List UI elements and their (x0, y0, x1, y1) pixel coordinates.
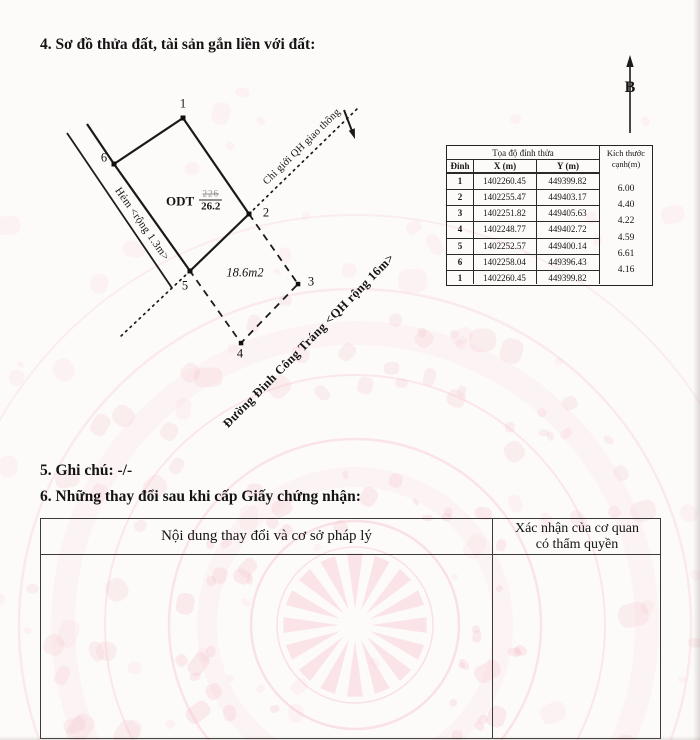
vertex-label-2: 2 (263, 206, 269, 221)
cell-y: 449396.43 (536, 254, 599, 270)
planning-area-label: 18.6m2 (226, 266, 263, 281)
parcel-number-area-fraction: 226 26.2 (199, 190, 222, 213)
parcel-number: 226 (201, 190, 222, 200)
coord-col-vertex: Đỉnh (447, 159, 473, 172)
vertex-label-6: 6 (101, 151, 107, 166)
cell-dinh: 4 (447, 221, 473, 237)
vertex-label-3: 3 (308, 275, 314, 290)
coord-row: 21402255.47449403.17 (447, 189, 599, 205)
changes-table: Nội dung thay đổi và cơ sở pháp lý Xác n… (40, 518, 661, 739)
coord-table-group-header: Tọa độ đỉnh thửa (447, 146, 599, 159)
alley-left-line (67, 133, 172, 288)
section-5-title: 5. Ghi chú: -/- (40, 462, 132, 480)
cell-x: 1402260.45 (473, 172, 536, 188)
scan-edge-shadow-bottom (0, 736, 700, 740)
cell-x: 1402248.77 (473, 221, 536, 237)
changes-col2-line1: Xác nhận của cơ quan (515, 521, 639, 536)
cell-dinh: 1 (447, 172, 473, 188)
cell-x: 1402255.47 (473, 189, 536, 205)
land-use-code: ODT (166, 193, 194, 209)
cell-y: 449399.82 (536, 270, 599, 286)
scan-edge-shadow-right (693, 0, 700, 740)
changes-col2-line2: có thẩm quyền (536, 537, 618, 552)
boundary-direction-arrow (344, 110, 355, 139)
parcel-area: 26.2 (199, 200, 222, 213)
edge-length: 4.59 (600, 233, 652, 244)
edge-length: 4.40 (600, 200, 652, 211)
vertex-label-5: 5 (182, 279, 188, 294)
vertex-label-4: 4 (237, 347, 243, 362)
coord-col-x: X (m) (474, 159, 536, 172)
changes-table-header-line (41, 554, 660, 555)
edge-length: 6.61 (600, 249, 652, 260)
coord-col-y: Y (m) (537, 159, 599, 172)
coordinate-table: Tọa độ đỉnh thửa Đỉnh X (m) Y (m) Kích t… (446, 145, 653, 286)
coord-row: 11402260.45449399.82 (447, 270, 599, 286)
certificate-page: 4. Sơ đồ thửa đất, tài sản gắn liền với … (0, 0, 700, 740)
coord-row: 11402260.45449399.82 (447, 172, 599, 188)
cell-y: 449403.17 (536, 189, 599, 205)
coord-col-edge-2: cạnh(m) (600, 158, 652, 170)
parcel-code-label: ODT 226 26.2 (166, 190, 222, 213)
coord-row: 31402251.82449405.63 (447, 205, 599, 221)
changes-col1-header: Nội dung thay đổi và cơ sở pháp lý (41, 519, 492, 554)
section-4-title: 4. Sơ đồ thửa đất, tài sản gắn liền với … (40, 36, 315, 54)
cell-y: 449399.82 (536, 172, 599, 188)
coord-row: 51402252.57449400.14 (447, 238, 599, 254)
cell-y: 449402.72 (536, 221, 599, 237)
vertex-label-1: 1 (180, 97, 186, 112)
cell-dinh: 1 (447, 270, 473, 286)
section-6-title: 6. Những thay đổi sau khi cấp Giấy chứng… (40, 488, 361, 506)
changes-col2-header: Xác nhận của cơ quan có thẩm quyền (493, 519, 661, 554)
cell-dinh: 5 (447, 238, 473, 254)
cell-dinh: 6 (447, 254, 473, 270)
cell-y: 449405.63 (536, 205, 599, 221)
cell-x: 1402258.04 (473, 254, 536, 270)
cell-y: 449400.14 (536, 238, 599, 254)
cell-dinh: 3 (447, 205, 473, 221)
cell-dinh: 2 (447, 189, 473, 205)
edge-length: 4.16 (600, 265, 652, 276)
cell-x: 1402260.45 (473, 270, 536, 286)
cell-x: 1402251.82 (473, 205, 536, 221)
north-label: B (625, 79, 636, 97)
edge-length: 6.00 (600, 184, 652, 195)
edge-length: 4.22 (600, 216, 652, 227)
coord-row: 41402248.77449402.72 (447, 221, 599, 237)
cell-x: 1402252.57 (473, 238, 536, 254)
coord-row: 61402258.04449396.43 (447, 254, 599, 270)
